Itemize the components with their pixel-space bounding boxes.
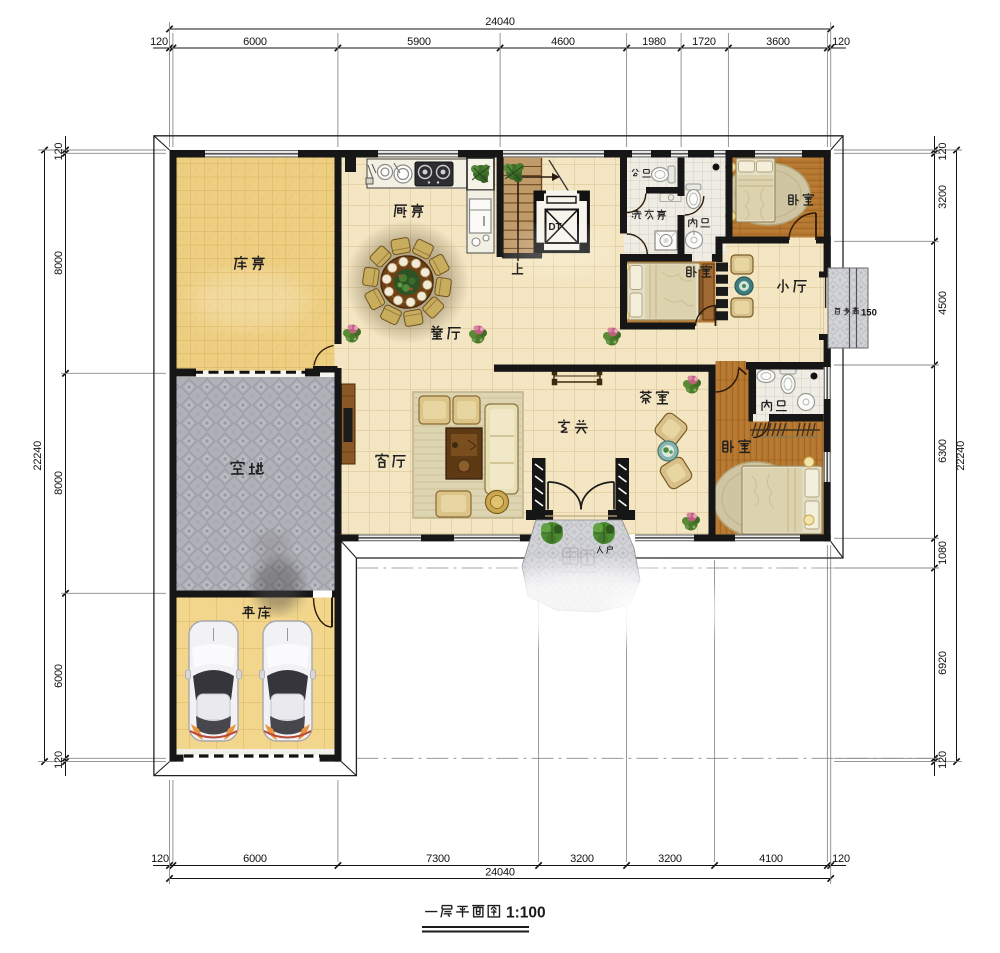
svg-text:8000: 8000 [53, 471, 65, 495]
svg-text:22240: 22240 [32, 441, 44, 471]
svg-text:120: 120 [937, 143, 949, 161]
svg-text:6000: 6000 [53, 664, 65, 688]
svg-text:150: 150 [861, 308, 877, 319]
svg-text:3200: 3200 [937, 185, 949, 209]
svg-text:6920: 6920 [937, 651, 949, 675]
svg-text:120: 120 [53, 143, 65, 161]
svg-text:120: 120 [832, 853, 850, 865]
svg-text:120: 120 [832, 36, 850, 48]
svg-text:24040: 24040 [485, 16, 515, 28]
svg-text:120: 120 [150, 36, 168, 48]
svg-text:6000: 6000 [243, 36, 267, 48]
svg-text:3200: 3200 [570, 853, 594, 865]
svg-text:120: 120 [151, 853, 169, 865]
svg-text:120: 120 [53, 751, 65, 769]
svg-text:1980: 1980 [642, 36, 666, 48]
svg-text:3600: 3600 [766, 36, 790, 48]
svg-text:120: 120 [937, 751, 949, 769]
svg-text:3200: 3200 [658, 853, 682, 865]
svg-text:5900: 5900 [407, 36, 431, 48]
svg-text:8000: 8000 [53, 251, 65, 275]
svg-text:1080: 1080 [937, 541, 949, 565]
svg-text:4100: 4100 [759, 853, 783, 865]
svg-text:22240: 22240 [955, 441, 967, 471]
svg-text:6000: 6000 [243, 853, 267, 865]
svg-text:6300: 6300 [937, 439, 949, 463]
svg-text:24040: 24040 [485, 867, 515, 879]
svg-text:1720: 1720 [692, 36, 716, 48]
svg-text:1:100: 1:100 [506, 905, 546, 922]
svg-text:7300: 7300 [426, 853, 450, 865]
svg-text:4600: 4600 [551, 36, 575, 48]
svg-text:4500: 4500 [937, 291, 949, 315]
